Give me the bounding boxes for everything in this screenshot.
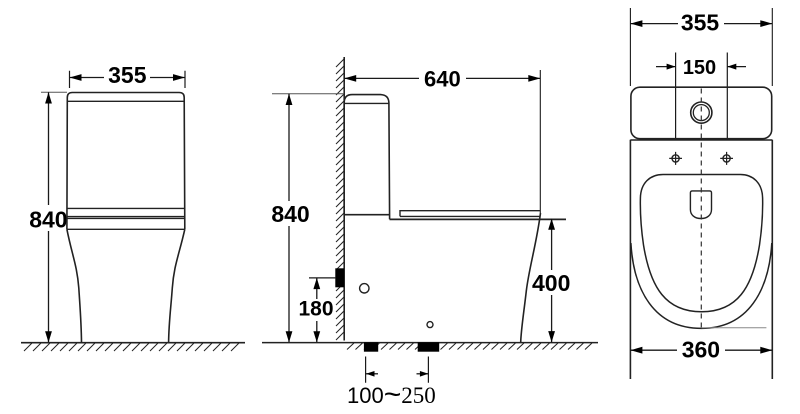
svg-text:640: 640 bbox=[424, 67, 461, 92]
svg-text:360: 360 bbox=[682, 337, 720, 363]
svg-text:840: 840 bbox=[29, 207, 67, 233]
svg-text:355: 355 bbox=[681, 10, 720, 36]
svg-text:355: 355 bbox=[108, 62, 147, 88]
svg-text:840: 840 bbox=[271, 201, 309, 227]
svg-text:100~ 250: 100~ 250 bbox=[347, 378, 436, 411]
svg-text:180: 180 bbox=[298, 298, 333, 321]
svg-text:400: 400 bbox=[532, 270, 570, 296]
svg-text:150: 150 bbox=[683, 57, 716, 79]
